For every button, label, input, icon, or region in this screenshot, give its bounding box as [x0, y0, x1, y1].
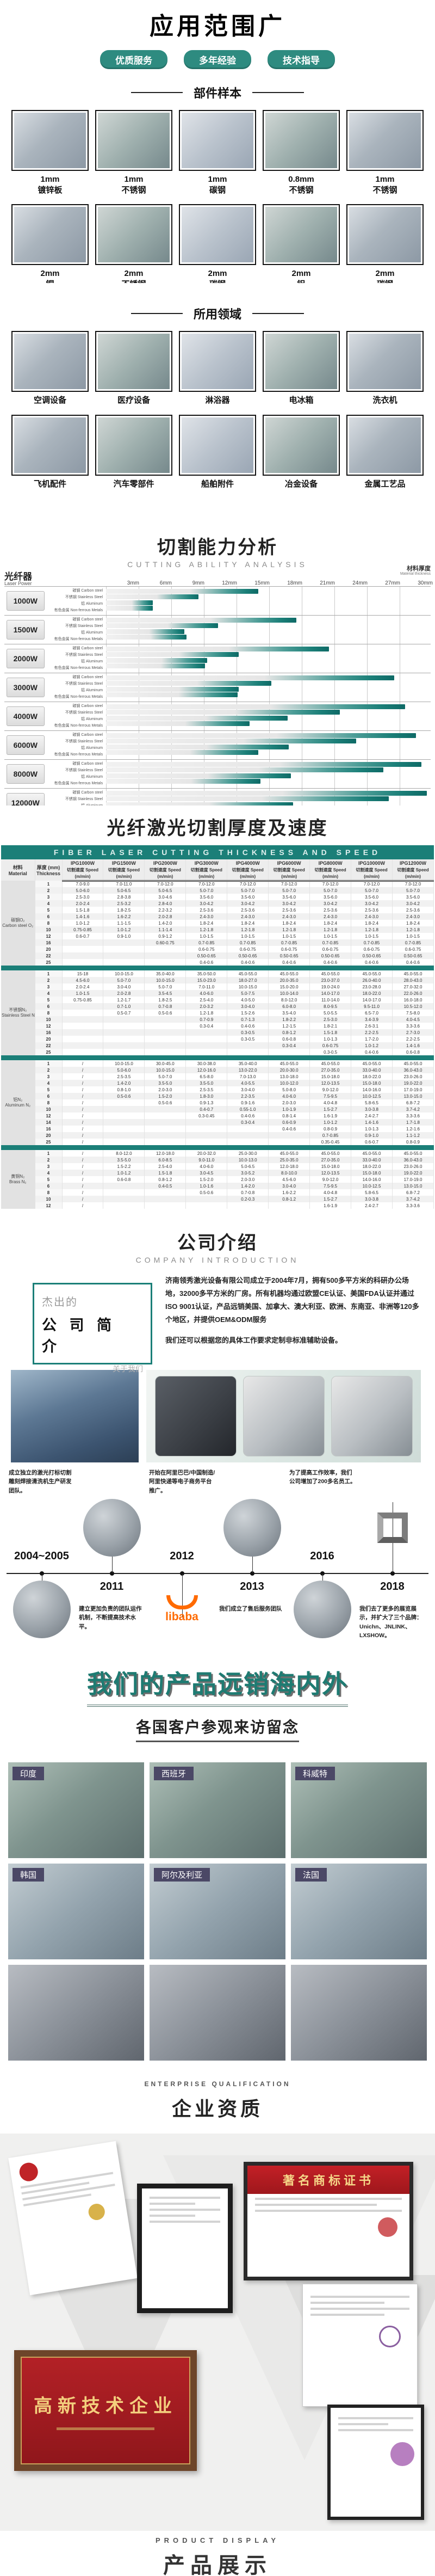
sample-card: 淋浴器: [179, 331, 256, 406]
certificate-ce: [327, 2405, 424, 2520]
speed-value: 1.0-1.2: [103, 926, 145, 933]
material-labels: 碳钢 Carbon steel不锈钢 Stainless Steel铝 Alum…: [47, 644, 106, 673]
thickness-value: 3: [35, 1073, 62, 1080]
country-tag: 西班牙: [154, 1767, 194, 1780]
speed-value: 14.0-16.0: [351, 1176, 393, 1183]
thickness-value: 16: [35, 939, 62, 946]
speed-row: 10/0.2-0.30.8-1.21.5-2.73.0-3.83.7-4.2: [1, 1196, 434, 1202]
col-header-power: IPG1000W: [62, 859, 103, 866]
sample-caption: 2mm铝: [263, 268, 340, 283]
speed-value: 2.0-2.4: [62, 900, 103, 907]
speed-value: 1.1-1.5: [103, 920, 145, 926]
speed-value: 0.9-1.2: [145, 933, 186, 939]
col-header-speed-label: 切割速度 Speed: [351, 866, 393, 874]
speed-value: 11.0-14.0: [310, 997, 351, 1003]
product-detail-page: 应用范围广 优质服务多年经验技术指导 部件样本 1mm镀锌板1mm不锈钢1mm碳…: [0, 0, 435, 2576]
speed-value: 0.3-0.4: [269, 1042, 310, 1049]
speed-value: [227, 1132, 269, 1139]
thickness-value: 5: [35, 1086, 62, 1093]
material-label: 碳钢 Carbon steel: [47, 790, 106, 796]
sample-size: 0.8mm: [263, 174, 340, 185]
bar-plot: [106, 644, 431, 673]
thickness-value: 1: [35, 970, 62, 977]
speed-value: 13.0-18.0: [269, 1073, 310, 1080]
speed-value: 0.6-0.75: [310, 1042, 351, 1049]
speed-value: 7.0-12.0: [227, 881, 269, 887]
thickness-bar: [106, 762, 421, 767]
speed-value: [62, 1042, 103, 1049]
speed-value: [62, 1010, 103, 1016]
speed-value: 0.3-0.45: [186, 1112, 227, 1119]
thickness-value: 4: [35, 990, 62, 997]
speed-value: 15.0-18.0: [351, 1170, 393, 1176]
speed-value: 23.0-26.0: [393, 1073, 434, 1080]
col-header-unit: (m/min): [269, 874, 310, 881]
speed-value: 2.2-2.5: [393, 1036, 434, 1042]
material-label: 铝 Aluminum: [47, 716, 106, 723]
speed-value: [145, 1126, 186, 1132]
speed-value: 25.0-35.0: [269, 1157, 310, 1163]
speed-value: 2.4-3.0: [351, 913, 393, 920]
speed-value: [186, 1196, 227, 1202]
speed-value: 30.0-45.0: [145, 1060, 186, 1067]
about-box-title: 公 司 简 介: [42, 1313, 143, 1356]
speed-value: 0.4-0.6: [393, 959, 434, 966]
speed-value: 5.0-7.0: [103, 977, 145, 983]
speed-value: 12.0-18.0: [145, 1150, 186, 1157]
material-label: 不锈钢 Stainless Steel: [47, 739, 106, 745]
speed-value: 0.4-0.6: [310, 959, 351, 966]
material-labels: 碳钢 Carbon steel不锈钢 Stainless Steel铝 Alum…: [47, 789, 106, 806]
speed-value: 1.2-1.7: [103, 997, 145, 1003]
sample-image-frame: [95, 110, 172, 171]
sample-size: 2mm: [11, 268, 89, 279]
col-header-speed-label: 切割速度 Speed: [310, 866, 351, 874]
sample-photo: [349, 113, 421, 168]
speed-value: 33.0-40.0: [351, 1067, 393, 1073]
speed-value: 1.0-1.6: [186, 1183, 227, 1189]
thickness-bar: [106, 750, 258, 755]
material-label: 铝 Aluminum: [47, 745, 106, 752]
sample-material: 不锈钢: [263, 185, 340, 196]
speed-value: 0.5-0.6: [145, 1099, 186, 1106]
sample-photo: [14, 334, 86, 389]
speed-value: 7.5-9.5: [310, 1093, 351, 1099]
speed-value: 1.8-2.2: [269, 1016, 310, 1023]
speed-value: 0.6-0.7: [62, 933, 103, 939]
material-label: 碳钢 Carbon steel: [47, 645, 106, 652]
material-label: 不锈钢 Stainless Steel: [47, 796, 106, 803]
speed-value: 0.9-1.3: [186, 1099, 227, 1106]
material-label: 有色金属 Non-ferrous Metals: [47, 723, 106, 729]
speed-value: [62, 952, 103, 959]
speed-row: 250.3-0.50.4-0.60.6-0.8: [1, 1049, 434, 1055]
sample-card: 汽车零部件: [95, 415, 172, 490]
speed-value: 1.7-2.0: [351, 1036, 393, 1042]
speed-value: 3.0-4.5: [186, 1170, 227, 1176]
speed-value: 3.5-6.0: [351, 894, 393, 900]
speed-value: 0.7-1.3: [227, 1016, 269, 1023]
col-header-speed-label: 切割速度 Speed: [393, 866, 434, 874]
speed-value: 18.0-22.0: [351, 990, 393, 997]
sample-photo: [265, 417, 337, 473]
speed-value: 5.0-7.0: [227, 887, 269, 894]
speed-row: 220.50-0.650.50-0.650.50-0.650.50-0.650.…: [1, 952, 434, 959]
speed-value: /: [62, 1106, 103, 1112]
speed-value: 20.0-35.0: [269, 977, 310, 983]
speed-value: 0.6-0.9: [269, 1119, 310, 1126]
speed-value: [269, 1202, 310, 1209]
speed-value: 5.0-5.5: [310, 1010, 351, 1016]
sample-caption: 2mm不锈钢: [95, 268, 172, 283]
alibaba-smile-icon: [166, 1595, 198, 1609]
speed-value: 0.60-0.75: [145, 939, 186, 946]
speed-value: 1.2-1.5: [269, 1023, 310, 1029]
sample-caption: 电冰箱: [263, 395, 340, 406]
speed-value: 6.8-7.2: [393, 1189, 434, 1196]
col-header-power: IPG12000W: [393, 859, 434, 866]
power-group-1000W: 1000W碳钢 Carbon steel不锈钢 Stainless Steel铝…: [4, 586, 431, 615]
speed-value: [103, 1119, 145, 1126]
speed-value: 2.8-4.0: [145, 900, 186, 907]
visitor-photo: [291, 1965, 427, 2061]
timeline-text: 为了提高工作效率，我们公司增加了200多名员工。: [289, 1468, 356, 1486]
speed-value: 10.0-14.0: [269, 990, 310, 997]
sample-caption: 1mm不锈钢: [95, 174, 172, 195]
col-header-power: IPG1500W: [103, 859, 145, 866]
thickness-value: 2: [35, 1157, 62, 1163]
sample-photo: [349, 207, 421, 262]
speed-value: /: [62, 1183, 103, 1189]
bar-plot: [106, 587, 431, 615]
about-box-tagline: 杰出的: [42, 1293, 143, 1309]
speed-value: 6.8-7.2: [393, 1099, 434, 1106]
company-paragraph-2: 我们还可以根据您的具体工作要求定制非标准辅助设备。: [165, 1334, 421, 1347]
power-label: 1000W: [7, 591, 45, 611]
material-label: 不锈钢 Stainless Steel: [47, 594, 106, 601]
sample-caption: 冶金设备: [263, 479, 340, 490]
speed-value: /: [62, 1119, 103, 1126]
thickness-value: 4: [35, 1080, 62, 1086]
speed-value: 3.5-6.0: [393, 894, 434, 900]
speed-value: 1.6-1.9: [310, 1202, 351, 1209]
thickness-bar: [106, 692, 238, 697]
plaque-title: 高新技术企业: [34, 2391, 177, 2418]
speed-value: 3.5-5.0: [186, 1080, 227, 1086]
speed-value: [186, 1139, 227, 1145]
sample-photo: [98, 113, 170, 168]
speed-value: [186, 1036, 227, 1042]
speed-value: 1.5-2.6: [227, 1010, 269, 1016]
speed-row: 5/0.6-0.80.8-1.21.5-2.02.0-3.04.5-6.09.0…: [1, 1176, 434, 1183]
speed-value: 1.7-1.8: [393, 1119, 434, 1126]
speed-value: 9.5-11.0: [351, 1003, 393, 1010]
visitor-photo: [150, 1965, 285, 2061]
thickness-value: 2: [35, 1067, 62, 1073]
speed-value: /: [62, 1170, 103, 1176]
speed-value: 1.8-2.4: [186, 920, 227, 926]
speed-value: [145, 1049, 186, 1055]
sample-card: 2mm碳钢: [179, 204, 256, 283]
thickness-value: 1: [35, 1060, 62, 1067]
speed-value: 0.3-0.5: [227, 1029, 269, 1036]
office-photo: [243, 1376, 325, 1456]
speed-value: 0.50-0.65: [351, 952, 393, 959]
speed-value: 0.6-0.7: [351, 1139, 393, 1145]
sample-photo: [14, 207, 86, 262]
sample-material: 铝: [263, 279, 340, 284]
sample-image-frame: [263, 331, 340, 392]
sample-image-frame: [346, 331, 424, 392]
thickness-value: 12: [35, 1023, 62, 1029]
fields-row-1: 空调设备医疗设备淋浴器电冰箱洗衣机: [0, 331, 435, 406]
speed-value: 9.0-11.0: [186, 1157, 227, 1163]
speed-value: 10.0-15.0: [145, 1067, 186, 1073]
speed-value: 5.8-6.5: [351, 1189, 393, 1196]
thickness-bar: [106, 600, 153, 605]
speed-value: 3.0-3.8: [351, 1106, 393, 1112]
speed-value: 3.0-3.8: [351, 1196, 393, 1202]
speed-value: [103, 959, 145, 966]
speed-value: 1.8-2.1: [310, 1023, 351, 1029]
speed-value: 26.0-40.0: [351, 977, 393, 983]
speed-value: 3.0-5.2: [227, 1170, 269, 1176]
sample-material: 不锈钢: [346, 185, 424, 196]
speed-value: 10.0-15.0: [145, 977, 186, 983]
speed-value: 0.5-0.6: [186, 1189, 227, 1196]
speed-value: 12.0-13.5: [310, 1170, 351, 1176]
thickness-value: 12: [35, 1112, 62, 1119]
material-group-label: 碳钢O₂Carbon steel O₂: [1, 881, 35, 966]
material-label: 有色金属 Non-ferrous Metals: [47, 665, 106, 672]
qualification-title-en: ENTERPRISE QUALIFICATION: [0, 2080, 435, 2088]
speed-row: 220.3-0.40.6-0.751.0-1.21.4-1.6: [1, 1042, 434, 1049]
speed-value: 1.0-1.2: [351, 1042, 393, 1049]
speed-value: [62, 1023, 103, 1029]
speed-value: 0.50-0.65: [227, 952, 269, 959]
col-header-material: 材料Material: [1, 859, 35, 881]
speed-value: 1.5-2.2: [103, 1163, 145, 1170]
speed-value: 1.1-1.4: [145, 926, 186, 933]
power-group-2000W: 2000W碳钢 Carbon steel不锈钢 Stainless Steel铝…: [4, 644, 431, 673]
speed-value: 5.0-8.0: [269, 1086, 310, 1093]
sample-material: 碳钢: [346, 279, 424, 284]
sample-image-frame: [95, 331, 172, 392]
thickness-value: 16: [35, 1029, 62, 1036]
sample-material: 镀锌板: [11, 185, 89, 196]
speed-value: 0.3-0.5: [310, 1049, 351, 1055]
thickness-bar: [106, 733, 416, 738]
power-group-12000W: 12000W碳钢 Carbon steel不锈钢 Stainless Steel…: [4, 788, 431, 806]
thickness-value: 5: [35, 997, 62, 1003]
speed-value: 0.4-0.6: [351, 959, 393, 966]
speed-value: 12.0-18.0: [269, 1163, 310, 1170]
speed-row: 24.5-6.05.0-7.010.0-15.015.0-23.018.0-27…: [1, 977, 434, 983]
speed-row: 20/0.7-0.850.9-1.01.1-1.2: [1, 1132, 434, 1139]
certificate-logo: [18, 2161, 39, 2182]
power-group-8000W: 8000W碳钢 Carbon steel不锈钢 Stainless Steel铝…: [4, 759, 431, 788]
speed-value: 18.0-27.0: [227, 977, 269, 983]
speed-value: 7.5-8.0: [393, 1010, 434, 1016]
material-label: 有色金属 Non-ferrous Metals: [47, 636, 106, 643]
speed-value: [103, 939, 145, 946]
axis-tick: 27mm: [368, 580, 400, 586]
sample-photo: [182, 207, 253, 262]
sample-size: 2mm: [95, 268, 172, 279]
speed-value: [227, 1042, 269, 1049]
speed-row: 50.75-0.851.2-1.71.8-2.52.5-4.04.0-5.08.…: [1, 997, 434, 1003]
speed-value: 0.4-0.6: [186, 959, 227, 966]
sample-image-frame: [179, 415, 256, 476]
speed-value: 2.0-2.8: [103, 990, 145, 997]
speed-value: 2.5-3.6: [186, 907, 227, 913]
axis-tick: 9mm: [172, 580, 204, 586]
speed-value: 1.4-1.6: [393, 1042, 434, 1049]
speed-value: 1.2-1.8: [351, 926, 393, 933]
material-labels: 碳钢 Carbon steel不锈钢 Stainless Steel铝 Alum…: [47, 616, 106, 644]
speed-value: 0.8-1.4: [269, 1112, 310, 1119]
material-label: 碳钢 Carbon steel: [47, 703, 106, 710]
speed-value: [145, 1132, 186, 1139]
col-header-unit: (m/min): [145, 874, 186, 881]
country-tag: 韩国: [13, 1868, 44, 1882]
sample-size: 2mm: [346, 268, 424, 279]
speed-value: 15-18: [62, 970, 103, 977]
thickness-bar: [106, 745, 289, 749]
x-axis-ticks: 3mm6mm9mm12mm15mm18mm21mm24mm27mm30mm: [104, 580, 431, 586]
thickness-value: 2: [35, 977, 62, 983]
speed-value: [103, 1036, 145, 1042]
thickness-bar: [106, 663, 205, 668]
speed-row: 32.5-3.02.8-3.83.0-4.63.5-6.03.5-6.03.5-…: [1, 894, 434, 900]
speed-value: 3.0-4.0: [103, 983, 145, 990]
col-header-speed-label: 切割速度 Speed: [227, 866, 269, 874]
speed-value: 1.8-2.4: [351, 920, 393, 926]
visitor-photo: 法国: [291, 1864, 427, 1959]
col-header-unit: (m/min): [351, 874, 393, 881]
thickness-bar: [106, 606, 153, 611]
speed-row: 8/0.5-0.60.9-1.30.9-1.62.0-3.04.0-4.85.8…: [1, 1099, 434, 1106]
sample-caption: 船舶附件: [179, 479, 256, 490]
speed-value: /: [62, 1126, 103, 1132]
office-photo-strip: [146, 1370, 421, 1462]
speed-value: [103, 1196, 145, 1202]
speed-value: 1.6-2.2: [103, 913, 145, 920]
thickness-bar: [106, 710, 340, 715]
speed-value: [103, 1099, 145, 1106]
thickness-value: 5: [35, 1176, 62, 1183]
speed-value: 6.0-8.5: [145, 1157, 186, 1163]
thickness-value: 8: [35, 920, 62, 926]
alibaba-logo: libaba: [153, 1581, 211, 1638]
sample-caption: 1mm镀锌板: [11, 174, 89, 195]
speed-value: 0.4-0.6: [227, 1112, 269, 1119]
sample-size: 1mm: [95, 174, 172, 185]
speed-row: 10/0.4-0.70.55-1.01.0-1.91.5-2.73.0-3.83…: [1, 1106, 434, 1112]
speed-value: 2.5-3.5: [103, 1073, 145, 1080]
speed-value: 1.5-2.7: [310, 1106, 351, 1112]
speed-value: 2.5-3.0: [310, 1016, 351, 1023]
visitor-photo: 韩国: [8, 1864, 144, 1959]
speed-value: 7.0-12.0: [269, 881, 310, 887]
speed-value: 3.7-4.2: [393, 1106, 434, 1112]
speed-row: 60.7-1.00.7-0.82.0-3.23.0-4.06.0-8.08.0-…: [1, 1003, 434, 1010]
speed-value: 0.4-0.5: [145, 1183, 186, 1189]
speed-value: 2.4-3.0: [186, 913, 227, 920]
speed-value: 0.6-0.75: [393, 946, 434, 952]
speed-value: 7.0-12.0: [351, 881, 393, 887]
thickness-value: 3: [35, 983, 62, 990]
speed-value: /: [62, 1139, 103, 1145]
speed-value: 13.0-15.0: [393, 1093, 434, 1099]
speed-value: 15.0-20.0: [269, 983, 310, 990]
power-label: 6000W: [7, 735, 45, 755]
sample-card: 冶金设备: [263, 415, 340, 490]
sample-caption: 2mm碳钢: [346, 268, 424, 283]
speed-value: 3.0-4.2: [269, 900, 310, 907]
speed-value: 20.0-30.0: [269, 1067, 310, 1073]
sample-caption: 1mm碳钢: [179, 174, 256, 195]
power-label: 1500W: [7, 620, 45, 640]
speed-value: [145, 1023, 186, 1029]
sample-material: 碳钢: [179, 185, 256, 196]
sample-card: 1mm不锈钢: [95, 110, 172, 195]
certificate-white: [302, 2284, 418, 2407]
power-label: 3000W: [7, 678, 45, 697]
sample-photo: [14, 113, 86, 168]
sample-photo: [14, 417, 86, 473]
material-group-label: 铝N₂Aluminum N₂: [1, 1060, 35, 1145]
sample-caption: 淋浴器: [179, 395, 256, 406]
speed-row: 3/1.5-2.22.5-4.04.0-6.05.0-6.512.0-18.01…: [1, 1163, 434, 1170]
sample-image-frame: [11, 415, 89, 476]
speed-value: 0.5-0.6: [103, 1093, 145, 1099]
speed-value: 1.2-1.6: [393, 1126, 434, 1132]
sample-size: 1mm: [11, 174, 89, 185]
speed-value: 2.0-3.0: [227, 1176, 269, 1183]
speed-value: 36.0-43.0: [393, 1157, 434, 1163]
speed-value: 0.7-0.85: [351, 939, 393, 946]
speed-value: 2.5-3.5: [186, 1086, 227, 1093]
speed-value: 2.0-2.8: [145, 913, 186, 920]
material-label: 不锈钢 Stainless Steel: [47, 681, 106, 687]
speed-value: 1.0-1.9: [269, 1106, 310, 1112]
speed-value: 3.5-4.5: [145, 990, 186, 997]
speed-value: 14.0-17.0: [310, 990, 351, 997]
speed-value: 15.0-18.0: [351, 1080, 393, 1086]
thickness-value: 25: [35, 1049, 62, 1055]
speed-value: 2.6-3.1: [351, 1023, 393, 1029]
thickness-bar: [106, 704, 405, 709]
speed-value: 3.5-6.0: [227, 894, 269, 900]
speed-value: 2.5-3.2: [103, 900, 145, 907]
part-samples-section: 部件样本 1mm镀锌板1mm不锈钢1mm碳钢0.8mm不锈钢1mm不锈钢 2mm…: [0, 71, 435, 283]
speed-value: [186, 1029, 227, 1036]
thickness-value: 20: [35, 946, 62, 952]
speed-value: [186, 1042, 227, 1049]
material-group-label: 不锈钢N₂Stainless Steel N₂: [1, 970, 35, 1055]
timeline-year: 2018: [357, 1581, 427, 1593]
sample-photo: [182, 113, 253, 168]
timeline-year: 2011: [77, 1581, 147, 1593]
speed-value: [145, 1036, 186, 1042]
speed-value: 20.0-32.0: [186, 1150, 227, 1157]
speed-value: 15.0-18.0: [310, 1073, 351, 1080]
speed-value: [145, 1189, 186, 1196]
thickness-value: 10: [35, 1106, 62, 1112]
speed-value: 0.4-0.6: [269, 959, 310, 966]
speed-value: 2.5-4.0: [186, 997, 227, 1003]
